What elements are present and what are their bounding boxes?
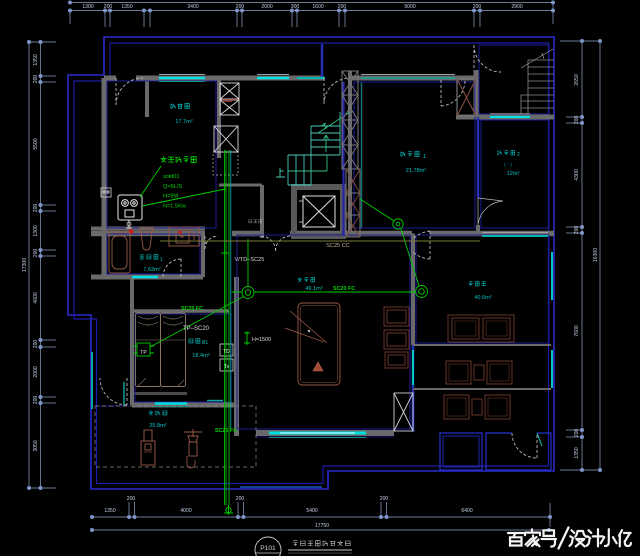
svg-text:200: 200 [236, 4, 245, 10]
svg-text:5000: 5000 [404, 4, 415, 10]
svg-text:12m²: 12m² [507, 171, 520, 177]
svg-text:200: 200 [104, 4, 113, 10]
svg-text:4300: 4300 [574, 169, 580, 180]
svg-text:300: 300 [291, 4, 300, 10]
svg-text:16300: 16300 [593, 248, 599, 262]
svg-text:H=1500: H=1500 [252, 337, 271, 343]
svg-text:18.4m²: 18.4m² [192, 353, 210, 359]
svg-text:SC20 FC: SC20 FC [333, 286, 355, 292]
svg-text:2650: 2650 [574, 74, 580, 85]
svg-text:200: 200 [338, 4, 347, 10]
svg-text:2900: 2900 [511, 4, 522, 10]
svg-text:200: 200 [380, 496, 389, 502]
svg-text:200: 200 [574, 429, 580, 438]
svg-text:3050: 3050 [33, 440, 39, 451]
svg-text:200: 200 [473, 4, 482, 10]
svg-text:5400: 5400 [306, 508, 317, 514]
svg-text:1: 1 [423, 154, 426, 160]
svg-text:17.7m²: 17.7m² [175, 119, 193, 125]
svg-text:4600: 4600 [33, 292, 39, 303]
svg-text:17750: 17750 [315, 523, 329, 529]
svg-text:(···): (···) [504, 162, 512, 167]
svg-text:TD: TD [223, 349, 230, 355]
svg-text:21.78m²: 21.78m² [406, 168, 427, 174]
svg-text:1350: 1350 [121, 4, 132, 10]
svg-text:25.8m²: 25.8m² [149, 423, 167, 429]
svg-text:40.6m²: 40.6m² [474, 295, 492, 301]
svg-text:200: 200 [33, 75, 39, 84]
svg-text:H=9M: H=9M [163, 194, 178, 200]
svg-text:P101: P101 [260, 545, 276, 552]
svg-text:N=1.5Kw: N=1.5Kw [163, 204, 187, 210]
svg-text:2: 2 [517, 152, 520, 158]
svg-text:200: 200 [574, 116, 580, 125]
svg-text:TP–SC20: TP–SC20 [183, 326, 210, 332]
svg-text:200: 200 [127, 496, 136, 502]
svg-text:2000: 2000 [33, 366, 39, 377]
svg-text:sold01: sold01 [163, 174, 179, 180]
svg-text:Tv: Tv [224, 364, 230, 370]
svg-text:7600: 7600 [574, 325, 580, 336]
svg-text:200: 200 [33, 204, 39, 213]
svg-text:3400: 3400 [187, 4, 198, 10]
svg-text:1350: 1350 [33, 54, 39, 65]
svg-text:200: 200 [574, 226, 580, 235]
svg-text:49.1m²: 49.1m² [305, 286, 323, 292]
svg-text:200: 200 [33, 249, 39, 258]
svg-text:1300: 1300 [82, 4, 93, 10]
svg-text:6400: 6400 [461, 508, 472, 514]
svg-text:Q=5L/S: Q=5L/S [163, 184, 182, 190]
svg-text:1350: 1350 [104, 508, 115, 514]
svg-text:1: 1 [160, 257, 163, 263]
svg-text:TP: TP [140, 350, 147, 356]
svg-text:2000: 2000 [261, 4, 272, 10]
svg-text:1300: 1300 [33, 225, 39, 236]
svg-text:SC25 FC: SC25 FC [181, 306, 203, 312]
svg-text:200: 200 [33, 340, 39, 349]
svg-text:5500: 5500 [33, 138, 39, 149]
svg-text:200: 200 [33, 396, 39, 405]
svg-text:V/TD–SC25: V/TD–SC25 [235, 257, 265, 263]
svg-text:SC25 CC: SC25 CC [326, 243, 350, 249]
svg-text:4000: 4000 [180, 508, 191, 514]
svg-text:B1: B1 [202, 340, 208, 346]
svg-text:200: 200 [236, 496, 245, 502]
svg-text:7.63m²: 7.63m² [143, 267, 161, 273]
svg-text:SC25 FC: SC25 FC [215, 428, 237, 434]
svg-text:1600: 1600 [312, 4, 323, 10]
svg-text:17300: 17300 [22, 258, 28, 272]
svg-text:1350: 1350 [574, 447, 580, 458]
